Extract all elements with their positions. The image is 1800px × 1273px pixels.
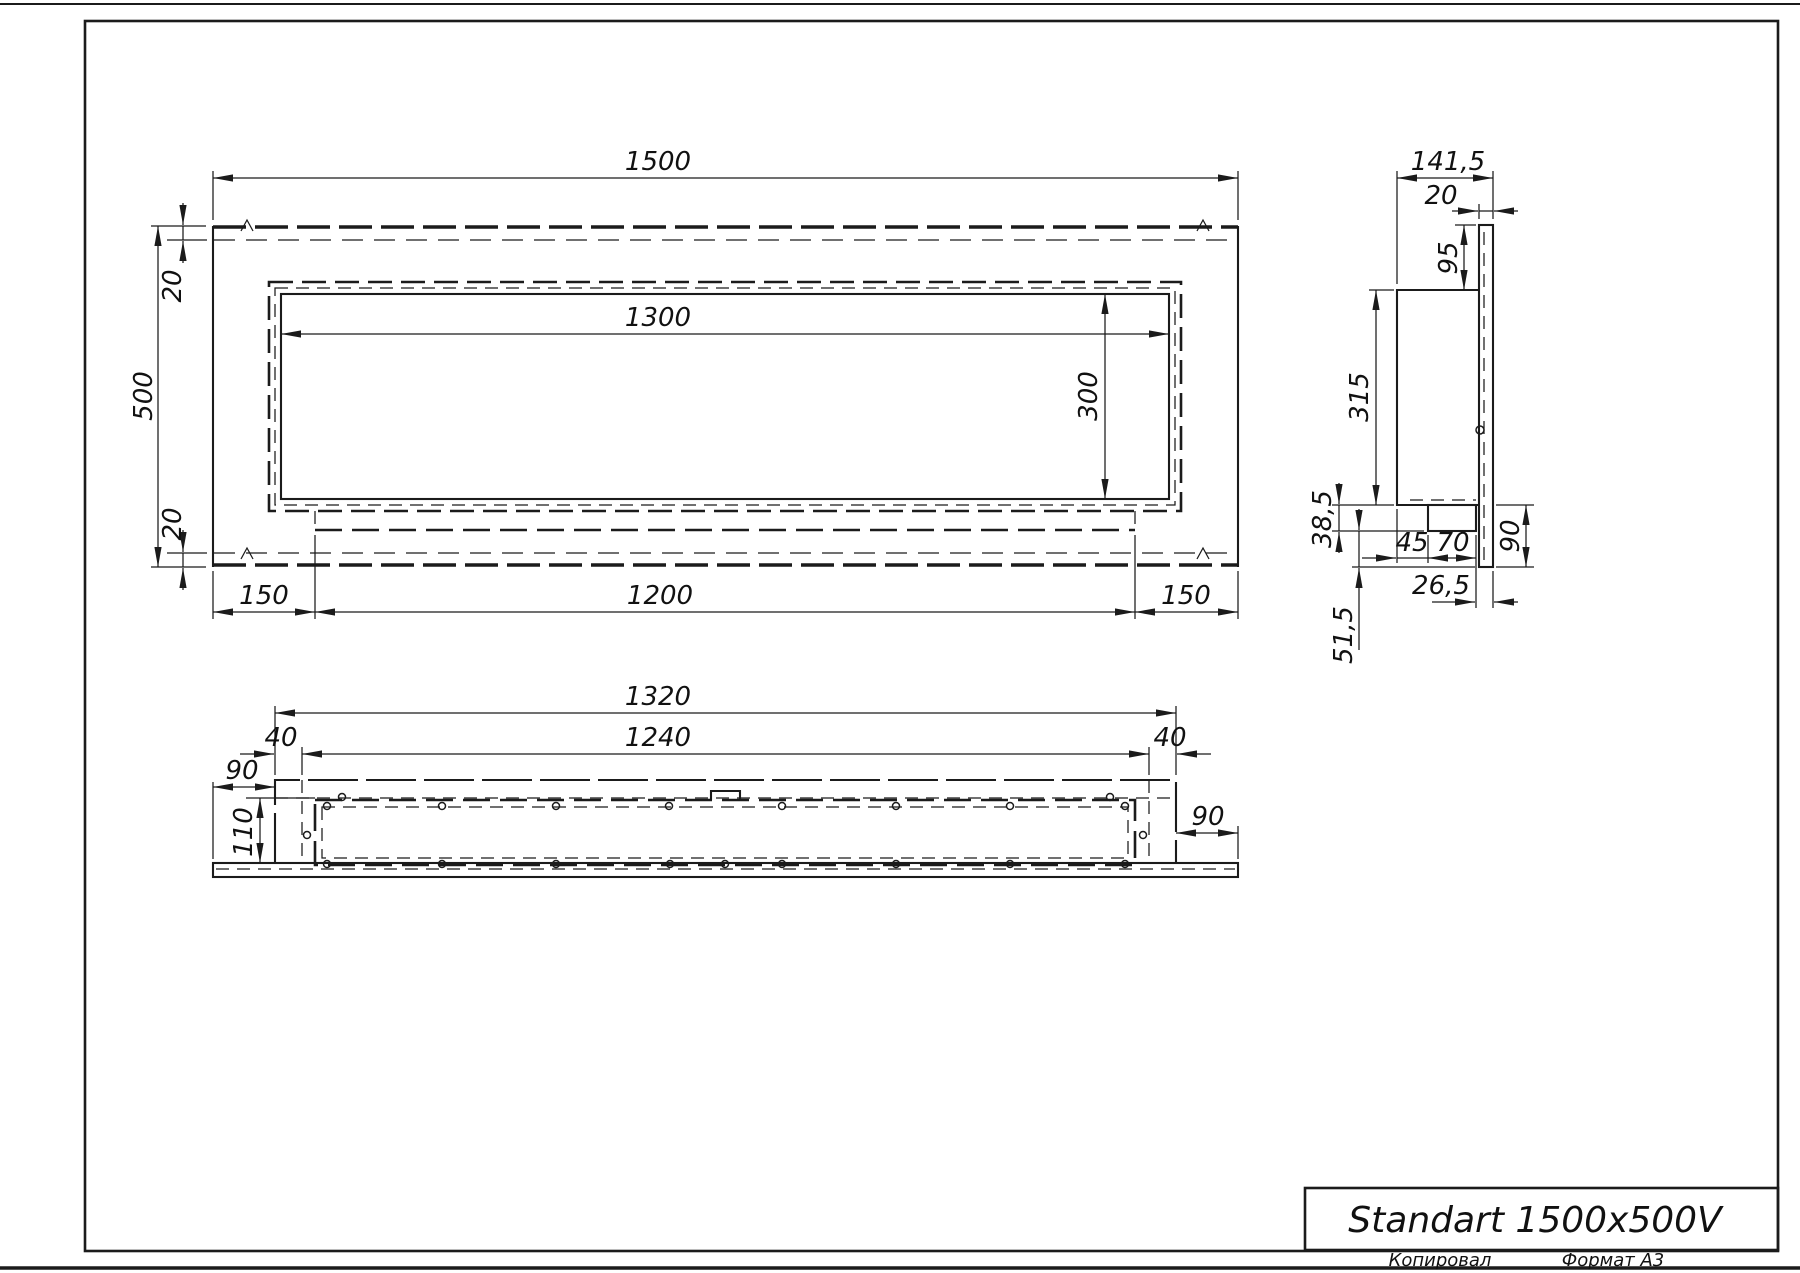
dim-label: 40: [1153, 723, 1186, 753]
dim-label: 150: [1161, 581, 1211, 611]
dim-label: 1300: [625, 303, 691, 333]
tray-inner-outline: [322, 807, 1128, 858]
body-outline: [1397, 290, 1479, 505]
bottom-view: 1320 1240 40 40 90 110 90: [213, 682, 1238, 877]
dim-label: 1500: [625, 147, 691, 177]
dim-label: 70: [1436, 528, 1469, 558]
dim-label: 150: [239, 581, 289, 611]
body-outline: [275, 780, 1176, 863]
dim-front-bottom-chain: 150 1200 150: [213, 535, 1238, 619]
dim-label: 20: [158, 507, 188, 540]
dim-label: 1200: [627, 581, 693, 611]
dim-label: 315: [1345, 372, 1375, 422]
format-label: Формат A3: [1562, 1250, 1665, 1271]
side-view: 141,5 20 95 315 38,5: [1308, 147, 1534, 664]
dim-top-overhang: 95: [1434, 225, 1476, 290]
dim-label: 51,5: [1329, 606, 1359, 664]
hidden-frame-outline: [275, 288, 1175, 505]
dim-label: 1240: [625, 723, 691, 753]
drawing-frame: [85, 21, 1778, 1251]
dim-label: 300: [1074, 371, 1104, 421]
dim-label: 1320: [625, 682, 691, 712]
dim-label: 90: [1191, 802, 1224, 832]
dim-label: 20: [1424, 181, 1457, 211]
front-view: 1500 500 20 20 1300: [129, 147, 1238, 619]
dim-front-top-offset: 20: [158, 203, 207, 303]
dim-body-height: 315: [1332, 290, 1394, 505]
drawing-title: Standart 1500x500V: [1348, 1200, 1724, 1241]
dim-opening-chain: 1240 40 40: [240, 723, 1211, 775]
dim-label: 500: [129, 371, 159, 421]
opening-outline: [281, 294, 1169, 499]
dim-front-bottom-offset: 20: [158, 507, 207, 590]
dim-label: 90: [225, 756, 258, 786]
dim-label: 26,5: [1412, 571, 1470, 601]
dim-label: 45: [1395, 528, 1428, 558]
dim-opening-width: 1300: [281, 303, 1169, 334]
dim-label: 110: [229, 807, 259, 857]
copied-label: Копировал: [1389, 1250, 1492, 1271]
dim-front-width: 1500: [213, 147, 1238, 220]
dim-label: 90: [1496, 519, 1526, 552]
dim-panel-thickness: 20: [1424, 181, 1518, 219]
technical-drawing: 1500 500 20 20 1300: [0, 0, 1800, 1273]
dim-label: 20: [158, 269, 188, 302]
dim-label: 38,5: [1308, 490, 1338, 548]
dim-label: 95: [1434, 241, 1464, 274]
dim-front-gap: 26,5: [1412, 571, 1518, 608]
front-panel-profile: [1479, 225, 1493, 567]
dim-label: 141,5: [1411, 147, 1485, 177]
drawing-sheet: 1500 500 20 20 1300: [0, 0, 1800, 1273]
dim-bottom-overhang: 90: [1496, 505, 1534, 567]
dim-panel-margin-right: 90: [1176, 802, 1238, 859]
dim-body-width: 1320: [275, 682, 1176, 775]
tray-holes: [304, 794, 1147, 868]
title-block: Standart 1500x500V: [1305, 1188, 1778, 1250]
dim-opening-height: 300: [1074, 294, 1105, 499]
dim-label: 40: [264, 723, 297, 753]
center-notch: [711, 791, 740, 800]
hidden-body-outline: [269, 282, 1181, 511]
